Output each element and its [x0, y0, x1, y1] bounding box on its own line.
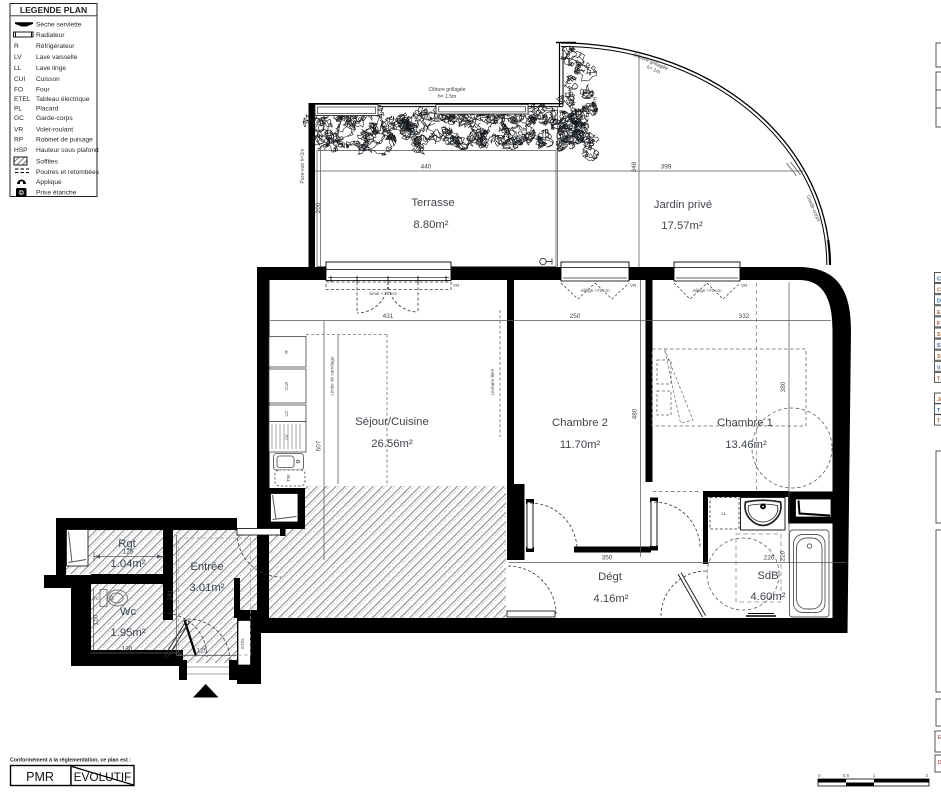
svg-text:Lave vaisselle: Lave vaisselle — [36, 54, 78, 61]
svg-text:S: S — [937, 332, 941, 338]
svg-text:PL: PL — [14, 106, 22, 113]
svg-text:R: R — [14, 43, 19, 50]
svg-text:Réfrigérateur: Réfrigérateur — [36, 43, 75, 50]
svg-text:399: 399 — [661, 164, 672, 171]
svg-text:Séjour/Cuisine: Séjour/Cuisine — [355, 416, 428, 428]
svg-text:350: 350 — [602, 555, 613, 562]
svg-text:480: 480 — [632, 408, 639, 419]
svg-text:Linéaire libre: Linéaire libre — [490, 368, 495, 395]
svg-text:2: 2 — [925, 773, 928, 778]
svg-text:348: 348 — [631, 161, 638, 172]
svg-text:Entrée: Entrée — [190, 561, 223, 573]
svg-text:Clôture grillagée: Clôture grillagée — [428, 87, 465, 93]
svg-text:LL: LL — [14, 65, 22, 72]
svg-text:Pare-vue h=2m: Pare-vue h=2m — [300, 149, 306, 184]
svg-text:3.01m²: 3.01m² — [189, 582, 224, 594]
svg-text:RP: RP — [14, 137, 24, 144]
svg-text:Hauteur sous plafond: Hauteur sous plafond — [36, 147, 99, 154]
svg-text:CUI: CUI — [284, 382, 289, 390]
svg-text:Four: Four — [36, 87, 50, 94]
svg-text:Allège ≈70 cm: Allège ≈70 cm — [692, 288, 721, 293]
svg-text:11.70m²: 11.70m² — [560, 439, 601, 451]
svg-text:4.16m²: 4.16m² — [593, 593, 628, 605]
svg-text:1: 1 — [873, 773, 876, 778]
svg-text:HSP: HSP — [14, 147, 28, 154]
svg-text:17.57m²: 17.57m² — [661, 220, 703, 232]
svg-text:☹: ☹ — [18, 190, 24, 197]
svg-text:4.60m²: 4.60m² — [750, 591, 785, 603]
svg-text:Volet-roulant: Volet-roulant — [36, 127, 73, 134]
svg-text:D: D — [937, 299, 941, 305]
svg-text:332: 332 — [739, 313, 750, 320]
svg-text:Placard: Placard — [36, 106, 59, 113]
svg-text:E: E — [937, 310, 941, 316]
svg-text:CUI: CUI — [14, 76, 26, 83]
svg-text:200: 200 — [315, 202, 322, 213]
svg-text:D: D — [938, 760, 941, 766]
svg-text:1.95m²: 1.95m² — [110, 627, 145, 639]
svg-text:h= 1.5m: h= 1.5m — [438, 94, 457, 100]
svg-text:Tableau électrique: Tableau électrique — [36, 96, 90, 103]
svg-text:E: E — [938, 735, 941, 741]
svg-text:Lave linge: Lave linge — [36, 65, 66, 72]
svg-text:VR: VR — [453, 283, 460, 288]
svg-text:C: C — [937, 277, 941, 283]
svg-text:S: S — [937, 343, 941, 349]
svg-text:LL: LL — [721, 511, 727, 516]
svg-text:130: 130 — [122, 646, 133, 653]
svg-text:150: 150 — [93, 614, 100, 625]
svg-text:Sèche serviette: Sèche serviette — [36, 22, 82, 29]
svg-text:8.80m²: 8.80m² — [413, 219, 448, 231]
svg-text:VR: VR — [630, 283, 637, 288]
svg-text:250: 250 — [570, 313, 581, 320]
svg-text:Garde-corps: Garde-corps — [36, 115, 73, 122]
svg-text:Poutres et retombées: Poutres et retombées — [36, 169, 100, 176]
svg-text:0.5: 0.5 — [843, 773, 850, 778]
svg-text:241: 241 — [167, 589, 174, 600]
svg-text:Dégt: Dégt — [598, 571, 623, 583]
svg-text:226: 226 — [764, 555, 775, 562]
svg-text:LC: LC — [284, 410, 289, 417]
svg-text:Conformément à la réglementati: Conformément à la réglementation, ce pla… — [10, 758, 131, 764]
svg-text:0: 0 — [818, 773, 821, 778]
svg-text:Jardin privé: Jardin privé — [654, 199, 712, 211]
svg-text:PMR: PMR — [26, 770, 54, 784]
svg-text:VR: VR — [741, 283, 748, 288]
svg-text:C: C — [937, 288, 941, 294]
svg-text:Chambre 1: Chambre 1 — [717, 417, 773, 429]
svg-text:431: 431 — [383, 313, 394, 320]
svg-text:Ja: Ja — [937, 397, 941, 403]
svg-text:13.46m²: 13.46m² — [725, 439, 767, 451]
svg-text:ETEL: ETEL — [240, 637, 245, 649]
svg-text:Rgt: Rgt — [118, 538, 136, 550]
svg-text:Seuil ≈ 20 cm: Seuil ≈ 20 cm — [369, 291, 397, 296]
svg-text:TC: TC — [93, 596, 100, 601]
svg-text:LEGENDE PLAN: LEGENDE PLAN — [20, 5, 87, 15]
svg-text:125: 125 — [197, 648, 208, 655]
svg-text:TRI: TRI — [286, 474, 291, 481]
svg-text:Terrasse: Terrasse — [411, 197, 454, 209]
svg-text:Limite de carrelage: Limite de carrelage — [330, 356, 335, 396]
svg-text:607: 607 — [316, 440, 323, 451]
svg-text:Soffites: Soffites — [36, 159, 59, 166]
svg-text:26.56m²: 26.56m² — [371, 438, 413, 450]
svg-text:Prise étanche: Prise étanche — [36, 190, 77, 197]
svg-text:440: 440 — [421, 164, 432, 171]
svg-text:380: 380 — [780, 381, 787, 392]
svg-text:220: 220 — [780, 550, 787, 561]
svg-text:V: V — [937, 365, 941, 371]
svg-text:Cuisson: Cuisson — [36, 76, 60, 83]
svg-text:SdB: SdB — [757, 570, 778, 582]
svg-text:Radiateur: Radiateur — [36, 32, 65, 39]
svg-text:Robinet de puisage: Robinet de puisage — [36, 137, 93, 144]
svg-text:Applique: Applique — [36, 179, 62, 186]
svg-text:LV: LV — [14, 54, 22, 61]
svg-text:VR: VR — [14, 127, 23, 134]
svg-text:S: S — [937, 354, 941, 360]
svg-text:Allège ≈70 cm: Allège ≈70 cm — [580, 288, 609, 293]
svg-text:1.04m²: 1.04m² — [110, 558, 145, 570]
svg-text:GC: GC — [14, 115, 24, 122]
svg-text:Wc: Wc — [120, 606, 137, 618]
svg-text:ETEL: ETEL — [14, 96, 31, 103]
svg-text:FO: FO — [14, 87, 23, 94]
svg-text:Chambre 2: Chambre 2 — [552, 417, 608, 429]
